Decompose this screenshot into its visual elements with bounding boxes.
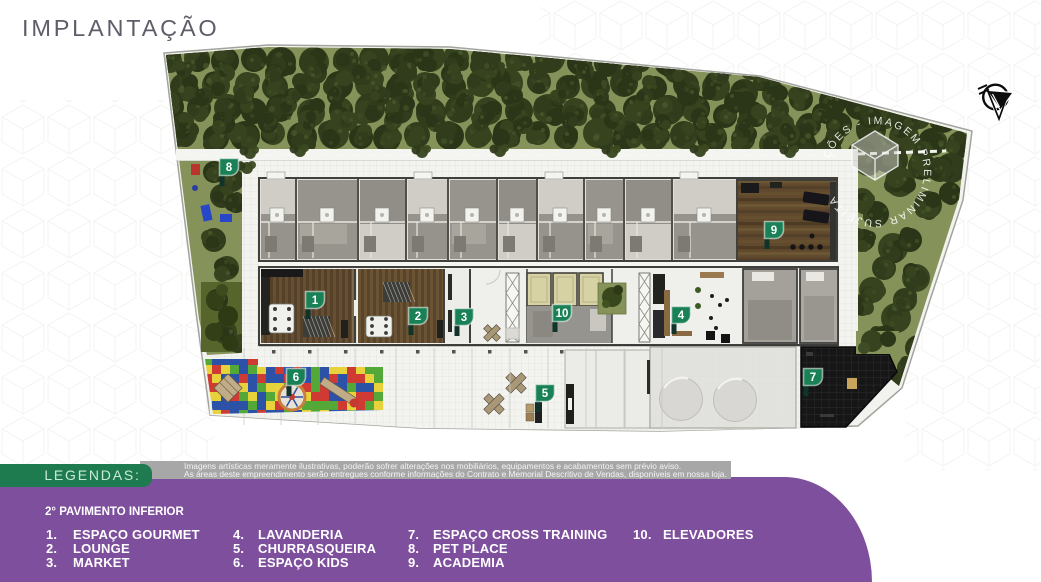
svg-text:4: 4 <box>678 310 685 322</box>
svg-text:2: 2 <box>415 311 421 323</box>
svg-text:6: 6 <box>293 372 299 384</box>
svg-text:1: 1 <box>312 295 319 307</box>
svg-text:8: 8 <box>226 162 233 174</box>
svg-text:10: 10 <box>556 308 569 320</box>
svg-text:3: 3 <box>461 312 467 324</box>
svg-text:7: 7 <box>810 372 816 384</box>
svg-text:5: 5 <box>542 388 549 400</box>
svg-text:9: 9 <box>771 225 777 237</box>
